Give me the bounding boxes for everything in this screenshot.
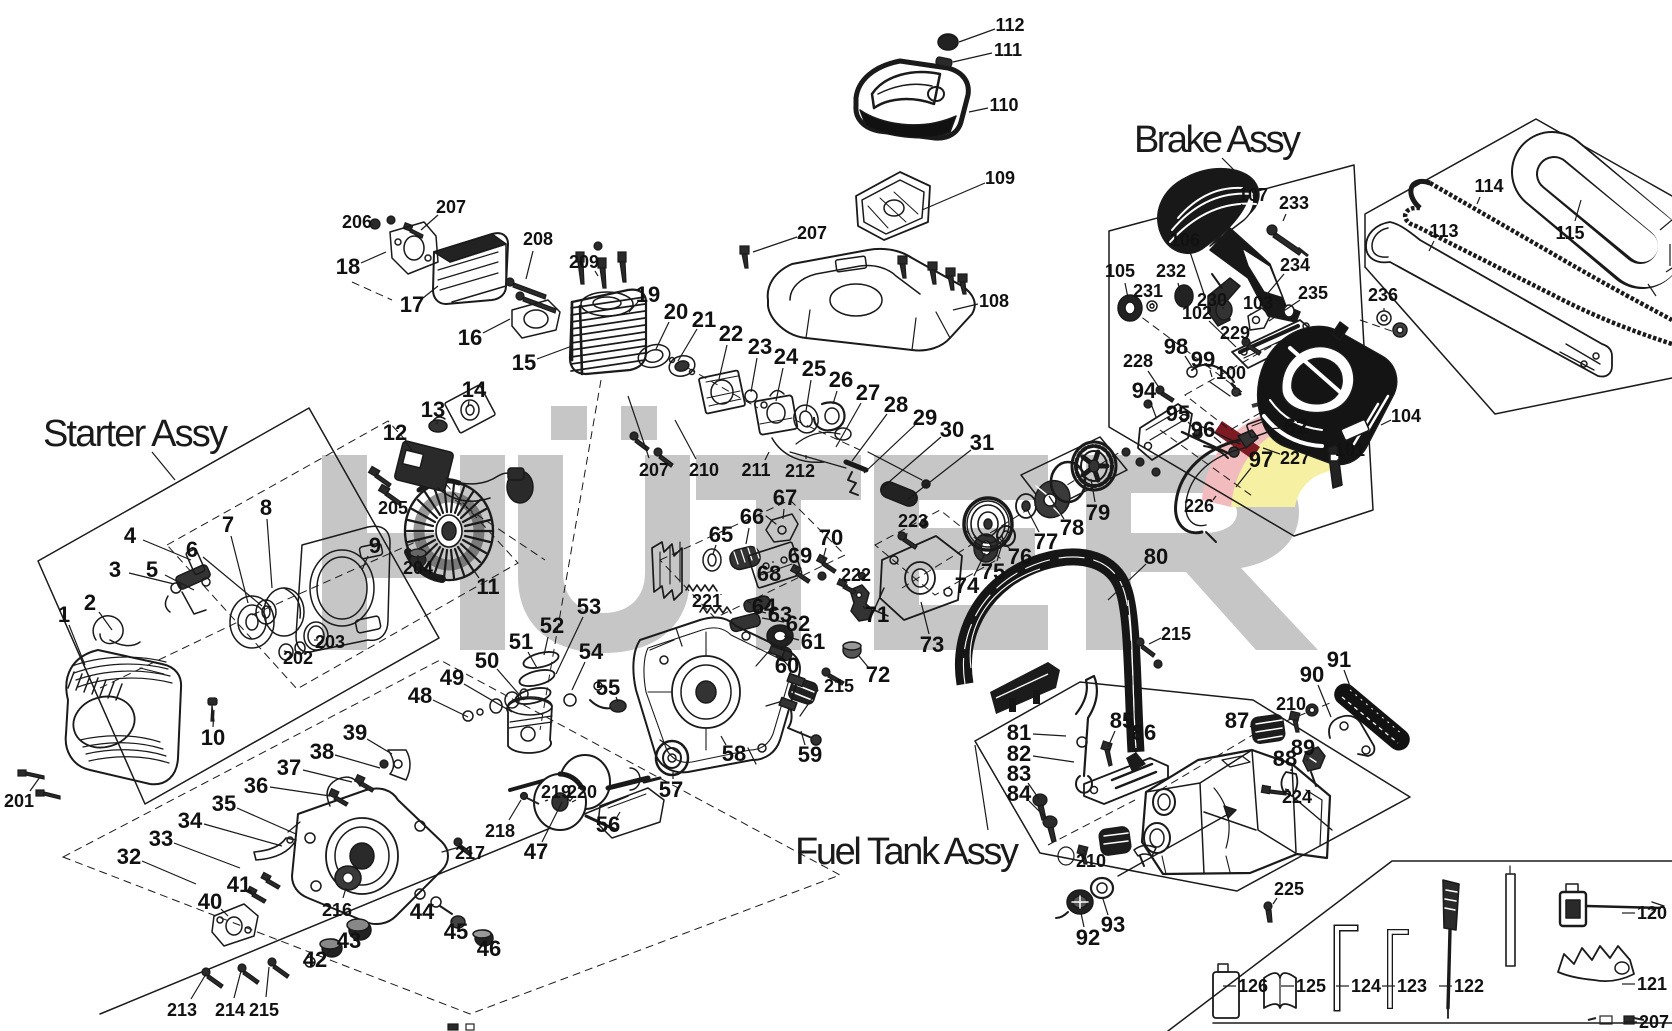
svg-text:60: 60 (775, 653, 799, 678)
svg-text:36: 36 (244, 773, 268, 798)
svg-text:5: 5 (146, 557, 158, 582)
svg-text:37: 37 (277, 755, 301, 780)
svg-text:108: 108 (979, 291, 1009, 311)
svg-text:231: 231 (1133, 281, 1163, 301)
svg-text:213: 213 (167, 1000, 197, 1020)
svg-text:8: 8 (260, 495, 272, 520)
svg-text:62: 62 (1284, 414, 1308, 439)
svg-text:89: 89 (1291, 735, 1315, 760)
svg-text:69: 69 (788, 543, 812, 568)
svg-text:201: 201 (4, 791, 34, 811)
svg-text:229: 229 (1220, 323, 1250, 343)
svg-text:75: 75 (981, 559, 1005, 584)
svg-text:38: 38 (310, 739, 334, 764)
svg-text:113: 113 (1429, 221, 1458, 241)
svg-text:100: 100 (1216, 363, 1246, 383)
svg-text:Fuel Tank Assy: Fuel Tank Assy (795, 831, 1020, 873)
svg-text:227: 227 (1280, 448, 1310, 468)
svg-text:43: 43 (337, 928, 361, 953)
svg-text:215: 215 (249, 1000, 279, 1020)
svg-text:77: 77 (1034, 529, 1058, 554)
svg-text:99: 99 (1191, 347, 1215, 372)
svg-text:17: 17 (400, 292, 424, 317)
svg-text:107: 107 (1238, 185, 1268, 205)
svg-text:126: 126 (1238, 976, 1268, 996)
svg-text:211: 211 (741, 460, 770, 480)
svg-text:221: 221 (692, 591, 722, 611)
svg-text:225: 225 (1274, 879, 1304, 899)
svg-text:111: 111 (994, 40, 1022, 60)
svg-text:52: 52 (540, 613, 564, 638)
svg-text:12: 12 (383, 420, 407, 445)
svg-text:22: 22 (719, 321, 743, 346)
svg-text:110: 110 (989, 95, 1018, 115)
svg-text:49: 49 (440, 665, 464, 690)
svg-text:104: 104 (1391, 406, 1421, 426)
svg-text:71: 71 (865, 602, 889, 627)
svg-text:203: 203 (315, 632, 345, 652)
svg-text:34: 34 (178, 808, 203, 833)
svg-text:84: 84 (1007, 781, 1032, 806)
svg-text:1: 1 (58, 602, 70, 627)
svg-text:106: 106 (1170, 230, 1200, 250)
svg-text:208: 208 (523, 229, 553, 249)
svg-text:72: 72 (866, 662, 890, 687)
svg-text:204: 204 (403, 558, 433, 578)
svg-text:114: 114 (1474, 176, 1503, 196)
svg-text:87: 87 (1225, 708, 1249, 733)
svg-text:74: 74 (955, 573, 980, 598)
svg-text:20: 20 (664, 299, 688, 324)
svg-text:28: 28 (884, 392, 908, 417)
svg-text:31: 31 (970, 430, 994, 455)
svg-text:123: 123 (1397, 976, 1427, 996)
svg-text:41: 41 (227, 872, 251, 897)
svg-text:115: 115 (1555, 223, 1584, 243)
svg-text:97: 97 (1249, 447, 1273, 472)
svg-text:94: 94 (1132, 378, 1157, 403)
svg-text:218: 218 (485, 821, 515, 841)
svg-text:79: 79 (1086, 500, 1110, 525)
svg-text:206: 206 (342, 212, 372, 232)
svg-text:101: 101 (1335, 440, 1365, 460)
svg-text:216: 216 (322, 900, 352, 920)
svg-text:233: 233 (1279, 193, 1309, 213)
svg-text:35: 35 (212, 791, 236, 816)
svg-text:51: 51 (509, 629, 533, 654)
svg-text:122: 122 (1454, 976, 1484, 996)
svg-text:102: 102 (1182, 303, 1212, 323)
svg-text:50: 50 (475, 648, 499, 673)
svg-text:223: 223 (898, 511, 928, 531)
svg-text:96: 96 (1191, 417, 1215, 442)
svg-text:32: 32 (117, 844, 141, 869)
svg-text:42: 42 (303, 947, 327, 972)
svg-text:14: 14 (462, 377, 487, 402)
svg-text:205: 205 (378, 498, 408, 518)
svg-text:6: 6 (186, 537, 198, 562)
svg-text:207: 207 (1639, 1012, 1669, 1031)
svg-text:86: 86 (1132, 720, 1156, 745)
svg-text:215: 215 (1161, 624, 1191, 644)
svg-text:105: 105 (1105, 261, 1135, 281)
svg-text:70: 70 (819, 525, 843, 550)
svg-text:76: 76 (1008, 544, 1032, 569)
svg-text:212: 212 (785, 461, 815, 481)
svg-text:3: 3 (109, 557, 121, 582)
svg-text:125: 125 (1296, 976, 1326, 996)
svg-text:58: 58 (722, 741, 746, 766)
svg-text:210: 210 (689, 460, 719, 480)
svg-text:47: 47 (524, 839, 548, 864)
svg-text:13: 13 (421, 397, 445, 422)
svg-text:26: 26 (829, 367, 853, 392)
svg-text:207: 207 (639, 460, 669, 480)
svg-text:15: 15 (512, 350, 536, 375)
svg-text:80: 80 (1144, 544, 1168, 569)
svg-text:11: 11 (476, 574, 499, 599)
svg-text:25: 25 (802, 356, 826, 381)
svg-text:64: 64 (752, 594, 777, 619)
svg-text:207: 207 (436, 197, 466, 217)
svg-text:215: 215 (824, 676, 854, 696)
svg-text:30: 30 (940, 417, 964, 442)
svg-text:93: 93 (1101, 912, 1125, 937)
svg-text:98: 98 (1164, 334, 1188, 359)
svg-text:95: 95 (1166, 401, 1190, 426)
svg-text:209: 209 (569, 252, 599, 272)
svg-text:85: 85 (1110, 708, 1134, 733)
svg-text:121: 121 (1637, 974, 1667, 994)
svg-text:78: 78 (1060, 515, 1084, 540)
svg-text:235: 235 (1298, 283, 1328, 303)
svg-text:73: 73 (920, 632, 944, 657)
svg-text:220: 220 (567, 782, 597, 802)
svg-text:55: 55 (596, 675, 620, 700)
svg-text:210: 210 (1276, 694, 1306, 714)
svg-text:90: 90 (1300, 662, 1324, 687)
svg-text:207: 207 (797, 223, 827, 243)
svg-text:59: 59 (798, 742, 822, 767)
svg-text:112: 112 (995, 15, 1024, 35)
svg-text:54: 54 (579, 639, 604, 664)
svg-text:2: 2 (84, 590, 96, 615)
svg-text:10: 10 (201, 725, 225, 750)
svg-text:Brake Assy: Brake Assy (1134, 119, 1302, 161)
svg-text:56: 56 (596, 812, 620, 837)
svg-text:109: 109 (985, 168, 1015, 188)
svg-text:67: 67 (773, 485, 797, 510)
svg-text:24: 24 (774, 344, 799, 369)
svg-text:68: 68 (757, 561, 781, 586)
svg-text:9: 9 (369, 533, 381, 558)
svg-text:234: 234 (1280, 255, 1310, 275)
svg-text:210: 210 (1076, 851, 1106, 871)
svg-text:202: 202 (283, 648, 313, 668)
svg-text:46: 46 (477, 936, 501, 961)
svg-text:232: 232 (1156, 261, 1186, 281)
svg-text:53: 53 (577, 594, 601, 619)
svg-text:39: 39 (343, 720, 367, 745)
svg-text:226: 226 (1184, 496, 1214, 516)
svg-text:65: 65 (709, 522, 733, 547)
svg-text:Starter Assy: Starter Assy (43, 413, 229, 455)
svg-text:236: 236 (1368, 285, 1398, 305)
svg-text:7: 7 (222, 512, 234, 537)
svg-text:222: 222 (841, 565, 871, 585)
svg-text:92: 92 (1076, 925, 1100, 950)
svg-text:217: 217 (455, 843, 485, 863)
svg-text:33: 33 (149, 826, 173, 851)
svg-text:224: 224 (1282, 787, 1312, 807)
svg-text:21: 21 (692, 307, 716, 332)
svg-text:44: 44 (410, 899, 435, 924)
svg-text:124: 124 (1351, 976, 1381, 996)
svg-text:57: 57 (659, 777, 683, 802)
svg-text:91: 91 (1327, 647, 1351, 672)
svg-text:27: 27 (856, 380, 880, 405)
svg-text:45: 45 (444, 919, 468, 944)
svg-text:19: 19 (636, 282, 660, 307)
svg-text:16: 16 (458, 325, 482, 350)
svg-text:23: 23 (748, 334, 772, 359)
svg-text:228: 228 (1123, 351, 1153, 371)
svg-text:66: 66 (740, 504, 764, 529)
svg-text:103: 103 (1243, 293, 1273, 313)
svg-text:214: 214 (215, 1000, 245, 1020)
svg-text:120: 120 (1637, 903, 1667, 923)
svg-text:4: 4 (124, 523, 137, 548)
svg-text:40: 40 (198, 889, 222, 914)
svg-text:29: 29 (913, 405, 937, 430)
svg-text:18: 18 (336, 254, 360, 279)
svg-text:48: 48 (408, 683, 432, 708)
